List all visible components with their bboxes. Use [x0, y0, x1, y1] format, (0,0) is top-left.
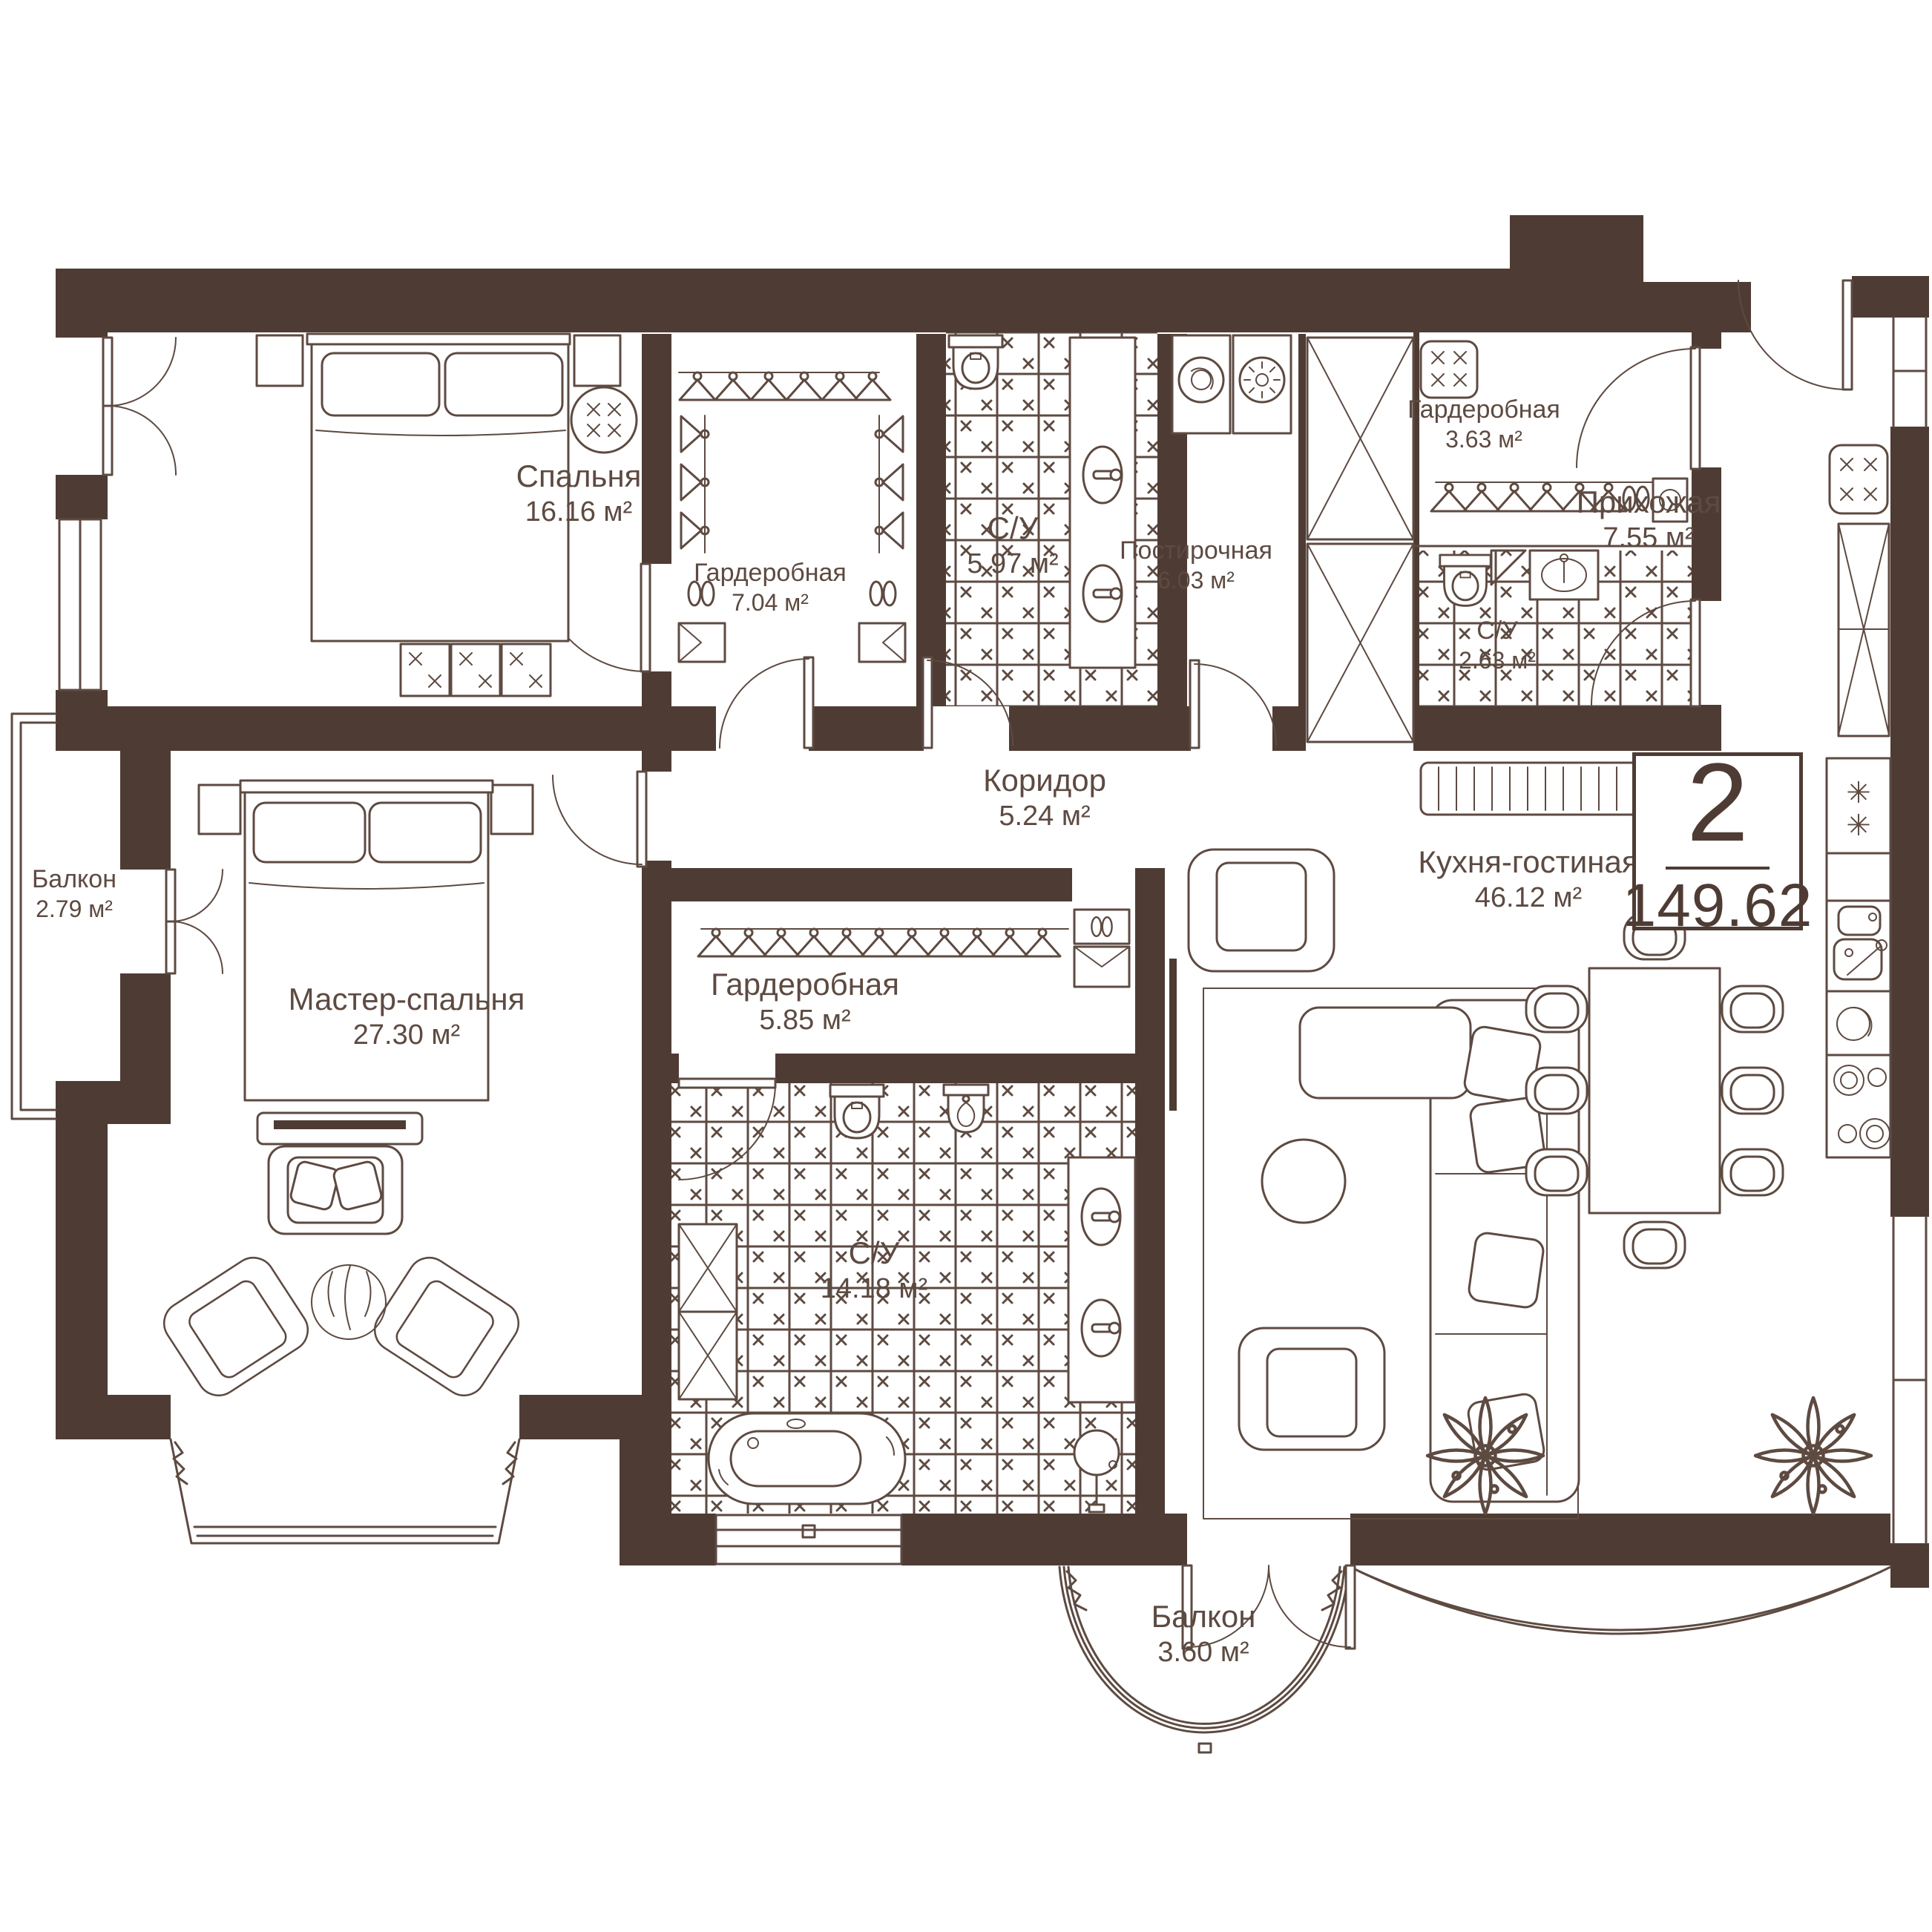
master-bedroom-furniture: [156, 781, 533, 1404]
armchair: [1239, 1328, 1384, 1450]
pillow: [369, 803, 481, 862]
toilet-icon: [1440, 555, 1491, 605]
bedroom-window: [59, 519, 101, 690]
wardrobe1-fittings: [679, 372, 905, 662]
master-door: [553, 772, 646, 867]
laundry-door: [1190, 660, 1276, 748]
cooktop-icon: [1827, 1055, 1890, 1157]
laundry-appliances: [1172, 335, 1291, 433]
armchair: [156, 1249, 316, 1404]
wardrobe1-door: [720, 657, 813, 748]
master-bay-window: [171, 1439, 519, 1543]
room-label-wardrobe-2: Гардеробная3.63 м²: [1407, 395, 1560, 455]
toilet-icon: [949, 335, 1002, 389]
svg-text:✳: ✳: [1846, 809, 1871, 842]
headboard: [307, 334, 570, 344]
badge-divider: [1666, 867, 1770, 870]
nightstand: [574, 335, 620, 386]
pillow: [322, 353, 439, 415]
sink-icon: [1082, 1300, 1120, 1356]
room-label-bathroom-2: С/У2.63 м²: [1459, 616, 1536, 676]
room-label-balcony-bottom: Балкон3.60 м²: [1151, 1597, 1256, 1670]
badge-total-area: 149.62: [1623, 875, 1813, 936]
pouf: [1421, 341, 1477, 398]
room-label-corridor: Коридор5.24 м²: [983, 761, 1106, 834]
room-label-kitchen-living: Кухня-гостиная46.12 м²: [1418, 843, 1638, 916]
nightstand: [491, 785, 533, 834]
bedroom-french-doors: [103, 338, 176, 475]
loveseat: [269, 1146, 402, 1234]
svg-text:✳: ✳: [1846, 777, 1871, 809]
bathtub: [709, 1413, 905, 1504]
room-label-bathroom-3: С/У14.18 м²: [821, 1234, 927, 1307]
plan-badge: 2 149.62: [1632, 752, 1803, 930]
hall-cabinets: [1307, 338, 1413, 742]
room-label-wardrobe-1: Гардеробная7.04 м²: [694, 558, 847, 618]
nightstand: [199, 785, 240, 834]
armchair: [1189, 850, 1334, 971]
kitchen-row: ✳ ✳: [1827, 758, 1890, 1157]
sink-icon: [1083, 447, 1122, 503]
tv-console: [257, 1113, 422, 1144]
room-label-hallway: Прихожая7.55 м²: [1577, 483, 1721, 556]
room-label-bathroom-1: С/У5.97 м²: [967, 509, 1058, 582]
sink-icon: [1082, 1189, 1120, 1245]
dining-table: [1589, 968, 1720, 1213]
room-label-master-bedroom: Мастер-спальня27.30 м²: [289, 980, 525, 1053]
floor-plan-canvas: ✳ ✳: [0, 0, 1932, 1932]
cabinet: [1827, 853, 1890, 901]
badge-rooms-count: 2: [1686, 746, 1748, 858]
master-balcony-doors: [166, 870, 223, 973]
floor-plan: ✳ ✳ Спальня16.16 м² Гардеробная7.04 м² С…: [0, 0, 1932, 1932]
headboard: [240, 781, 493, 792]
room-label-bedroom: Спальня16.16 м²: [516, 457, 642, 530]
appliance: [1827, 991, 1890, 1055]
pillow: [445, 353, 562, 415]
bed-bench: [401, 644, 551, 696]
kitchen-right-window: [1893, 1217, 1926, 1543]
pouf: [1830, 445, 1887, 513]
nightstand: [257, 335, 303, 386]
round-rug: [312, 1265, 386, 1339]
bathroom-bottom-window: [716, 1515, 901, 1564]
side-table: [571, 387, 637, 453]
armchair: [367, 1249, 527, 1404]
room-label-laundry: Постирочная6.03 м²: [1120, 536, 1272, 596]
room-label-balcony-left: Балкон2.79 м²: [11, 864, 137, 924]
bidet-icon: [944, 1085, 988, 1132]
entry-corner-window: [1893, 318, 1926, 427]
toilet-icon: [830, 1085, 884, 1138]
sink-icon: [1083, 565, 1122, 622]
entrance-door: [1738, 280, 1852, 390]
coffee-table: [1262, 1140, 1345, 1223]
tv-wall: [1169, 959, 1177, 1111]
room-label-wardrobe-3: Гардеробная5.85 м²: [711, 965, 899, 1038]
plant-icon: [1755, 1398, 1871, 1514]
wardrobe2-door: [1577, 347, 1700, 469]
kitchen-bay-outline: [1350, 1567, 1890, 1634]
pillow: [254, 803, 365, 862]
